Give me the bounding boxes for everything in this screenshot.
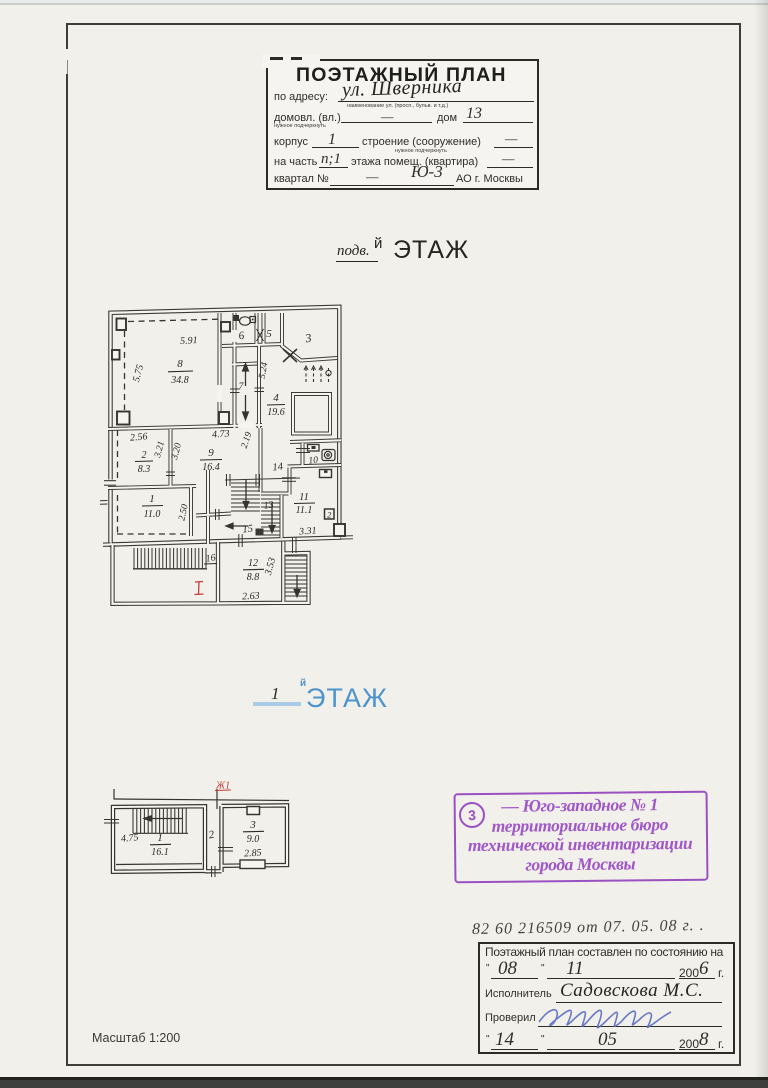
svg-text:16.1: 16.1 — [151, 847, 169, 858]
svg-text:11.0: 11.0 — [144, 509, 161, 520]
svg-text:11: 11 — [299, 492, 309, 503]
svg-text:9.0: 9.0 — [247, 834, 260, 845]
svg-text:5.24: 5.24 — [258, 361, 271, 379]
svg-text:2: 2 — [327, 510, 332, 520]
svg-text:3.31: 3.31 — [298, 525, 317, 537]
svg-text:3: 3 — [304, 331, 313, 346]
svg-text:15: 15 — [242, 523, 254, 535]
svg-text:10: 10 — [308, 456, 319, 467]
svg-text:2: 2 — [208, 829, 216, 842]
svg-text:2: 2 — [142, 450, 147, 461]
svg-text:6: 6 — [238, 330, 246, 343]
svg-text:5.75: 5.75 — [131, 363, 146, 383]
svg-text:4.75: 4.75 — [121, 832, 139, 844]
svg-text:1: 1 — [157, 832, 163, 844]
svg-text:2.63: 2.63 — [242, 591, 260, 603]
svg-text:34.8: 34.8 — [170, 375, 189, 386]
svg-text:3.53: 3.53 — [263, 556, 278, 577]
svg-text:19.6: 19.6 — [267, 407, 285, 418]
svg-text:2.85: 2.85 — [244, 848, 262, 860]
svg-text:8.8: 8.8 — [247, 572, 260, 583]
svg-text:16.4: 16.4 — [202, 462, 220, 473]
svg-text:5.91: 5.91 — [180, 335, 198, 347]
svg-text:14: 14 — [272, 461, 284, 473]
svg-text:3.21: 3.21 — [153, 440, 167, 460]
svg-text:2.56: 2.56 — [130, 431, 148, 443]
svg-text:4: 4 — [273, 392, 279, 404]
svg-text:12: 12 — [248, 558, 258, 569]
svg-text:4.73: 4.73 — [212, 428, 230, 440]
svg-text:2.50: 2.50 — [177, 503, 190, 522]
svg-text:9: 9 — [208, 447, 214, 459]
svg-text:3: 3 — [249, 819, 256, 831]
svg-text:7: 7 — [239, 382, 245, 392]
svg-text:2.19: 2.19 — [240, 431, 255, 450]
svg-text:8: 8 — [177, 358, 183, 370]
svg-text:13: 13 — [263, 499, 274, 511]
svg-text:16: 16 — [205, 552, 216, 564]
svg-text:8.3: 8.3 — [138, 464, 151, 475]
svg-text:5: 5 — [266, 328, 272, 340]
svg-text:11.1: 11.1 — [296, 505, 313, 516]
svg-text:1: 1 — [149, 493, 155, 505]
